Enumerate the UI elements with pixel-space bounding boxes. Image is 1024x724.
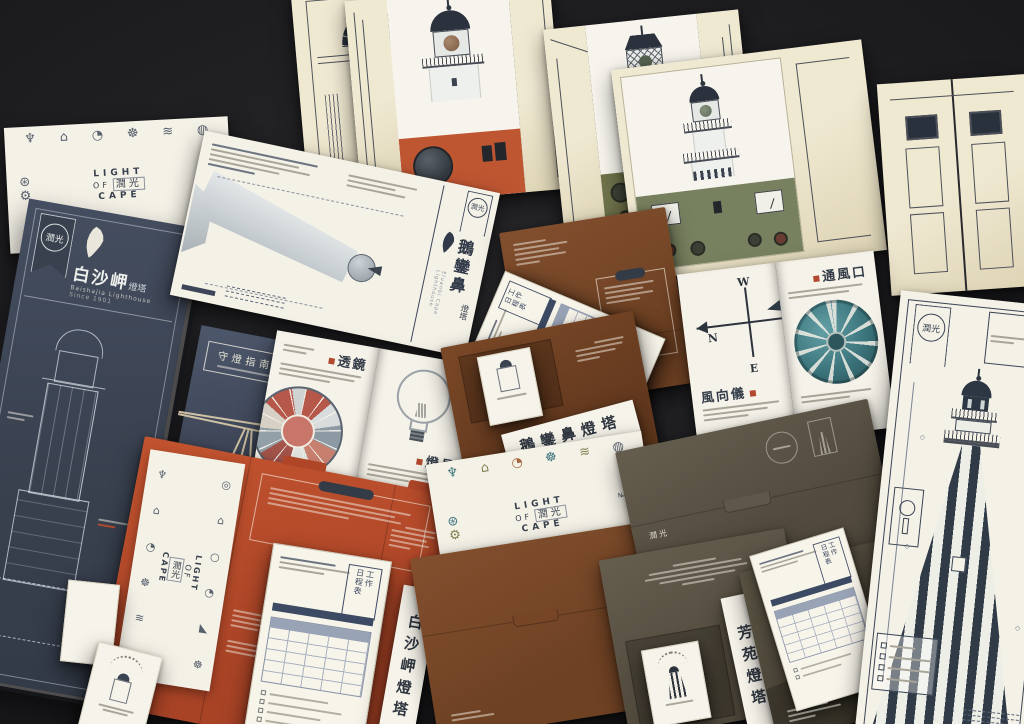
flatlay-scene: ♆⌂◔☸≋◍ ⊛⚙ LIGHT OF潤光 CAPE ◉⚓ ◎⌂○◔◣☸ 潤光 白… (0, 0, 1024, 724)
door-panel (905, 146, 943, 208)
detail-stem (902, 518, 910, 535)
motif-icon: ≋ (162, 125, 174, 140)
finial (640, 25, 643, 34)
folder-note-text (574, 333, 627, 365)
compass-letter: N (617, 492, 623, 500)
bulb-detail-box (888, 487, 924, 548)
tower-upper (692, 129, 726, 153)
arc-text-dots (656, 649, 688, 668)
switch-icon (713, 201, 722, 214)
section-tag (750, 390, 757, 397)
box-pill (615, 267, 646, 282)
schedule-table (261, 616, 372, 697)
arc-text-dots (109, 652, 146, 676)
motif-icon: ⌂ (152, 505, 161, 518)
motif-icon: ⌂ (59, 131, 68, 146)
tuck-notch (512, 609, 559, 628)
lantern-room (432, 29, 470, 58)
folder-note-text (450, 704, 501, 724)
motif-icon: ♆ (24, 132, 36, 147)
compass-letter: E (749, 362, 759, 376)
brand-of: OF (515, 512, 533, 524)
motif-icon: ○ (209, 551, 220, 564)
door-panel (971, 142, 1009, 204)
page-heading: 通風口 (821, 265, 868, 285)
tower-window (951, 557, 966, 573)
folder-note-text (513, 232, 577, 269)
knob-icon (773, 231, 789, 247)
lid-line (817, 235, 871, 243)
work-schedule-card: 工作 日程表 (242, 543, 391, 724)
brand-of: OF (93, 180, 110, 190)
card-title-suffix: 燈塔 (457, 303, 471, 321)
section-tag (813, 275, 820, 282)
mini-striped-tower (665, 671, 687, 700)
brand-logo: 潤光 (113, 176, 146, 191)
section-tag (416, 458, 423, 465)
taiwan-map-icon (78, 224, 107, 260)
motif-icon: ◔ (145, 541, 156, 554)
compass-letter: N (707, 331, 719, 345)
page-heading: 風向儀 (700, 386, 747, 406)
mini-lamp-body (496, 365, 520, 392)
detail-bulb-icon (899, 499, 917, 517)
lid-line (796, 57, 850, 65)
page-heading: 透鏡 (336, 354, 368, 374)
motif-icon: ⚙ (448, 528, 462, 544)
motif-icon: ☸ (139, 576, 151, 589)
brand-seal: 潤光 (39, 221, 71, 253)
door-pane-right (969, 110, 1003, 136)
tower-body (429, 64, 482, 102)
poster-title-suffix: 燈塔 (127, 282, 146, 295)
motif-icon: ◔ (203, 587, 214, 600)
postmark-stamp-icon (763, 429, 801, 467)
folder-note-text (639, 549, 752, 596)
striped-base (693, 167, 734, 181)
knob-icon (690, 240, 707, 257)
door-pane-left (905, 114, 939, 140)
motif-icon: ◣ (198, 623, 208, 636)
stamp-tower (816, 431, 830, 455)
schedule-title-box: 工作 日程表 (341, 564, 383, 621)
map-legend-box (984, 312, 1024, 371)
mini-lamp-body (109, 678, 132, 704)
section-tag (328, 358, 335, 365)
door-panel (910, 212, 948, 274)
brand-seal: 潤光 (916, 312, 947, 343)
lantern-glass (967, 398, 972, 407)
ribbon-badge: 潤光 (459, 190, 493, 236)
tower-lower (691, 158, 735, 181)
lantern-glass (980, 400, 985, 409)
bulb-base (409, 430, 425, 442)
diamond-mark: ◇ (1015, 624, 1021, 633)
envelope-logo: 潤光 (648, 527, 670, 542)
diamond-mark: ◇ (919, 433, 925, 442)
lamp-lens (443, 35, 460, 52)
motif-icon: ☸ (127, 127, 139, 142)
legend-box (871, 633, 939, 696)
lamp-lens (699, 104, 712, 117)
door-line (556, 59, 576, 236)
card-title-en: Eluanbi Cape Lighthouse (419, 269, 447, 346)
door-panel (976, 207, 1014, 269)
motif-icon: ≋ (134, 612, 145, 625)
brand-lockup: LIGHT OF潤光 CAPE (34, 163, 204, 207)
switch-box-icon (494, 142, 507, 161)
tuck-notch (722, 491, 772, 514)
lighthouse-stamp-icon (807, 417, 838, 457)
knob-icon (747, 232, 763, 248)
motif-icon: ♆ (156, 469, 168, 482)
motif-icon: ◔ (91, 129, 103, 144)
meter-dial-icon (754, 189, 784, 214)
tower-window (452, 78, 458, 86)
motif-icon: ⌂ (216, 515, 225, 528)
motif-icon: ⌂ (480, 461, 490, 476)
twine-tassel (249, 429, 252, 457)
brand-seal: 潤光 (466, 196, 490, 220)
switch-box-icon (482, 145, 493, 162)
motif-icon: ☸ (192, 658, 204, 671)
vent-illustration (789, 295, 883, 389)
motif-icon: ◎ (221, 479, 232, 492)
box-split-line (951, 79, 968, 291)
box-double-doors (877, 74, 1024, 296)
compass-letter: W (737, 275, 751, 289)
